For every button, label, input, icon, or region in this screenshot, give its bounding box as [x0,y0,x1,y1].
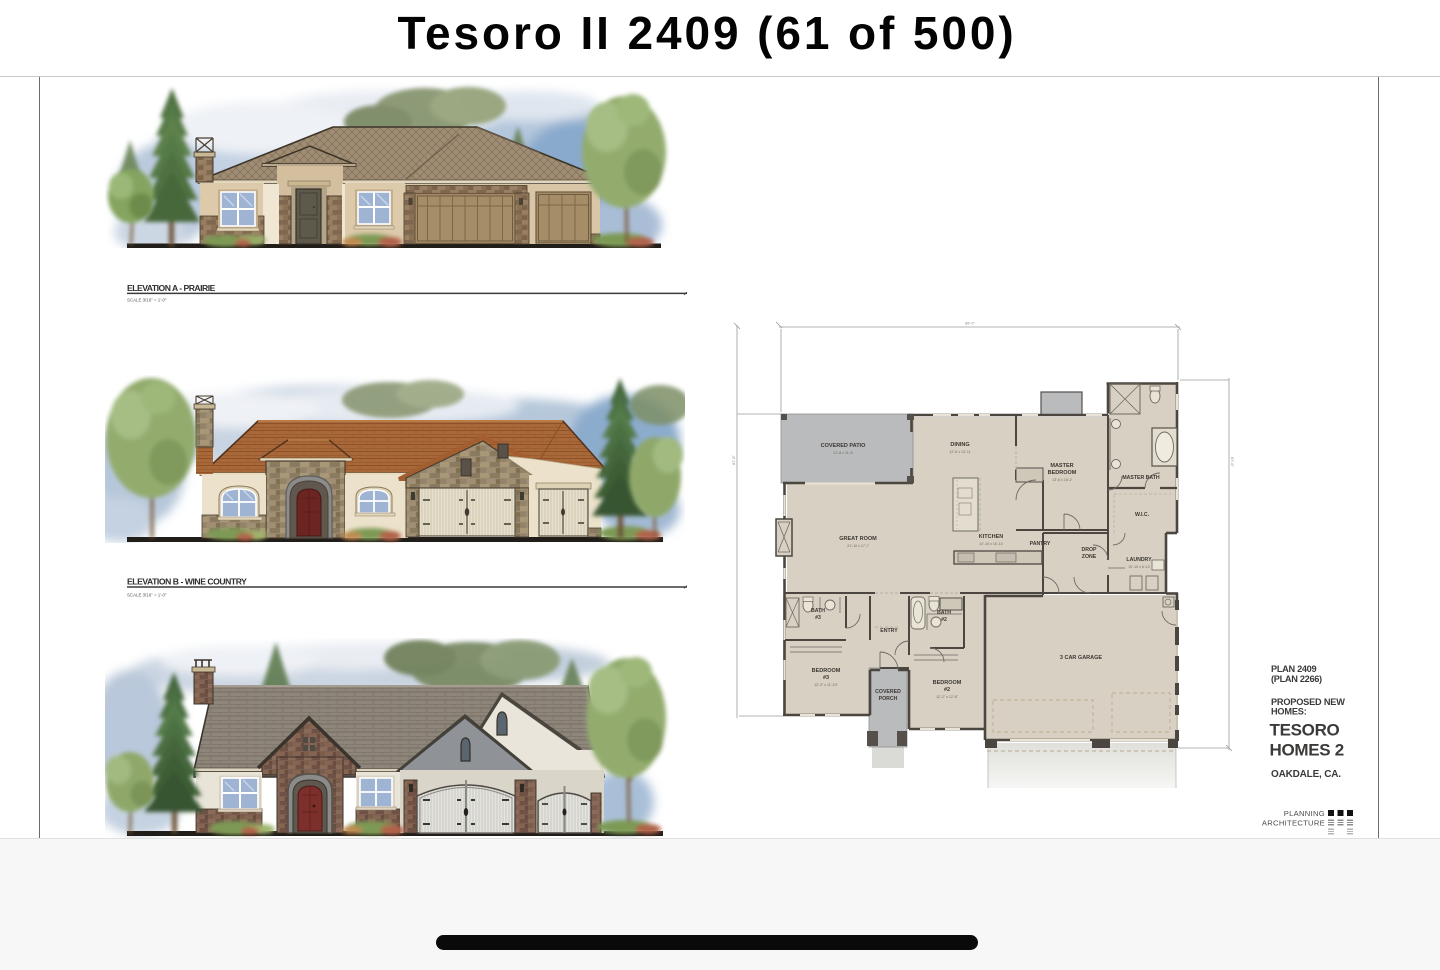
svg-text:BATH: BATH [937,610,951,616]
svg-text:21'-10 x 17'-7: 21'-10 x 17'-7 [847,544,869,548]
svg-text:COVERED: COVERED [875,689,901,695]
svg-text:BEDROOM: BEDROOM [1048,470,1077,476]
svg-text:TESORO: TESORO [1270,721,1340,740]
svg-text:PLANNING: PLANNING [1284,809,1325,818]
svg-text:10'-10 x 16'-10: 10'-10 x 16'-10 [979,542,1003,546]
svg-text:88'-0": 88'-0" [965,322,975,326]
svg-text:MASTER BATH: MASTER BATH [1122,475,1160,481]
svg-text:KITCHEN: KITCHEN [979,534,1003,540]
svg-text:BATH: BATH [811,608,825,614]
svg-text:3 CAR GARAGE: 3 CAR GARAGE [1060,655,1103,661]
svg-text:ENTRY: ENTRY [880,628,898,634]
svg-text:DROP: DROP [1082,547,1098,553]
svg-text:PORCH: PORCH [879,696,898,702]
svg-text:HOMES 2: HOMES 2 [1270,741,1344,760]
svg-text:OAKDALE, CA.: OAKDALE, CA. [1271,769,1341,780]
svg-text:10'-10 x 6'-10: 10'-10 x 6'-10 [1128,565,1150,569]
svg-text:SCALE 3/16" = 1'-0": SCALE 3/16" = 1'-0" [127,593,167,598]
svg-text:GREAT ROOM: GREAT ROOM [839,536,877,542]
svg-text:21'-8 x 11'-8: 21'-8 x 11'-8 [833,451,852,455]
svg-text:PANTRY: PANTRY [1030,541,1051,547]
svg-text:(PLAN 2266): (PLAN 2266) [1271,674,1322,684]
svg-text:PLAN 2409: PLAN 2409 [1271,664,1316,674]
svg-text:COVERED PATIO: COVERED PATIO [821,443,866,449]
svg-text:#3: #3 [823,675,829,681]
svg-text:W.I.C.: W.I.C. [1135,512,1150,518]
svg-text:87'-6": 87'-6" [732,455,736,465]
svg-text:12'-6 x 13'-11: 12'-6 x 13'-11 [949,450,970,454]
svg-text:LAUNDRY: LAUNDRY [1126,557,1152,563]
svg-text:12'-2" x 12'-8": 12'-2" x 12'-8" [936,695,959,699]
svg-text:PROPOSED NEW: PROPOSED NEW [1271,697,1345,707]
svg-text:MASTER: MASTER [1050,463,1073,469]
svg-text:13'-6 x 16'-2: 13'-6 x 16'-2 [1052,478,1072,482]
svg-text:#2: #2 [941,617,947,623]
svg-text:87'-6": 87'-6" [1230,457,1234,467]
svg-text:ELEVATION A - PRAIRIE: ELEVATION A - PRAIRIE [127,283,216,293]
svg-text:ZONE: ZONE [1082,554,1097,560]
svg-text:BEDROOM: BEDROOM [933,680,962,686]
svg-text:HOMES:: HOMES: [1271,707,1307,717]
svg-text:12'-3" x 11'-10": 12'-3" x 11'-10" [814,683,839,687]
svg-text:ARCHITECTURE: ARCHITECTURE [1262,819,1325,828]
svg-text:#3: #3 [815,615,821,621]
svg-text:#2: #2 [944,687,950,693]
svg-text:SCALE 3/16" = 1'-0": SCALE 3/16" = 1'-0" [127,298,167,303]
svg-text:DINING: DINING [950,442,969,448]
svg-text:BEDROOM: BEDROOM [812,668,841,674]
svg-text:ELEVATION B - WINE COUNTRY: ELEVATION B - WINE COUNTRY [127,577,247,587]
